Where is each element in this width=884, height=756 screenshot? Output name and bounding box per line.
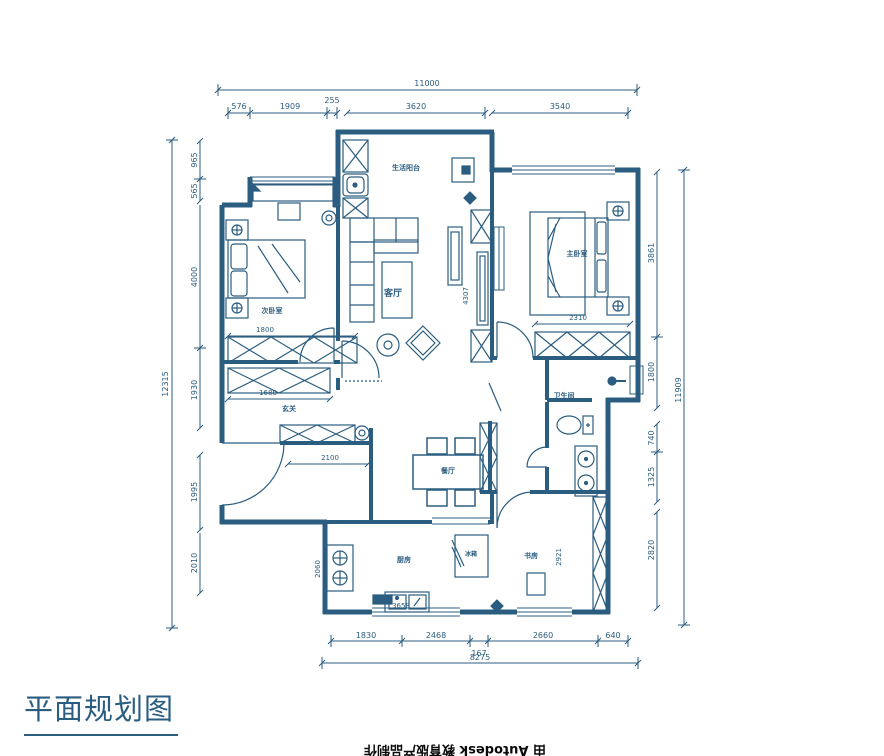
furniture-master	[530, 202, 629, 315]
dim-left-seg3: 4000	[190, 267, 199, 287]
dim-top-seg2: 1909	[280, 102, 300, 111]
dim-bottom-seg1: 1830	[356, 631, 376, 640]
dim-top-seg1: 576	[231, 102, 246, 111]
dim-bottom-total: 8275	[470, 653, 490, 662]
dim-top-total: 11000	[414, 79, 439, 88]
label-bath: 卫生间	[554, 391, 575, 400]
dim-left-seg1: 965	[190, 152, 199, 167]
dim-left-total: 12315	[161, 371, 170, 396]
autodesk-watermark: 由 Autodesk 教育版产品制作	[330, 739, 580, 756]
doors	[222, 322, 547, 567]
dim-left-seg2: 565	[190, 183, 199, 198]
dim-kitchen-depth: 2060	[314, 560, 322, 578]
dim-right-total: 11909	[674, 377, 683, 402]
label-kitchen: 厨房	[397, 555, 411, 564]
windows	[250, 166, 643, 616]
dim-left-seg5: 1995	[190, 482, 199, 502]
furniture-kitchen	[327, 535, 488, 612]
dim-master-wardrobe: 2310	[569, 314, 587, 322]
dim-right-seg4: 1325	[647, 467, 656, 487]
dim-bottom-seg2: 2468	[426, 631, 446, 640]
dim-hall-closet: 1680	[259, 389, 277, 397]
wardrobes	[228, 140, 630, 612]
dim-left-seg4: 1930	[190, 380, 199, 400]
label-living: 客厅	[383, 287, 402, 299]
label-study: 书房	[524, 551, 538, 560]
dim-top-seg4: 3620	[406, 102, 426, 111]
dim-bottom-seg5: 640	[605, 631, 620, 640]
dim-right-seg5: 2820	[647, 540, 656, 560]
dim-right-seg1: 3861	[647, 243, 656, 263]
dim-top-seg3: 255	[324, 96, 339, 105]
dim-kitchen-width: 3658	[392, 602, 410, 610]
dim-right-seg2: 1800	[647, 362, 656, 382]
label-dining: 餐厅	[440, 466, 455, 475]
dim-bed2-wardrobe: 1800	[256, 326, 274, 334]
label-fridge: 冰箱	[465, 550, 477, 558]
dim-study-height: 2921	[555, 548, 563, 566]
label-hall: 玄关	[282, 404, 296, 413]
label-master: 主卧室	[567, 249, 588, 258]
label-bedroom2: 次卧室	[262, 306, 283, 315]
floor-plan-page: 生活阳台 客厅 主卧室 次卧室 玄关 餐厅 厨房 书房 卫生间 冰箱	[0, 0, 884, 756]
dim-left-seg6: 2010	[190, 553, 199, 573]
floor-plan-drawing: 生活阳台 客厅 主卧室 次卧室 玄关 餐厅 厨房 书房 卫生间 冰箱	[0, 0, 884, 756]
dim-top-seg5: 3540	[550, 102, 570, 111]
page-title: 平面规划图	[24, 686, 178, 736]
furniture-study	[355, 426, 545, 612]
dim-hall-width: 2100	[321, 454, 339, 462]
dim-bottom-seg4: 2660	[533, 631, 553, 640]
dim-right-seg3: 740	[647, 430, 656, 445]
label-balcony: 生活阳台	[392, 163, 420, 172]
dim-living-height: 4307	[462, 287, 470, 305]
